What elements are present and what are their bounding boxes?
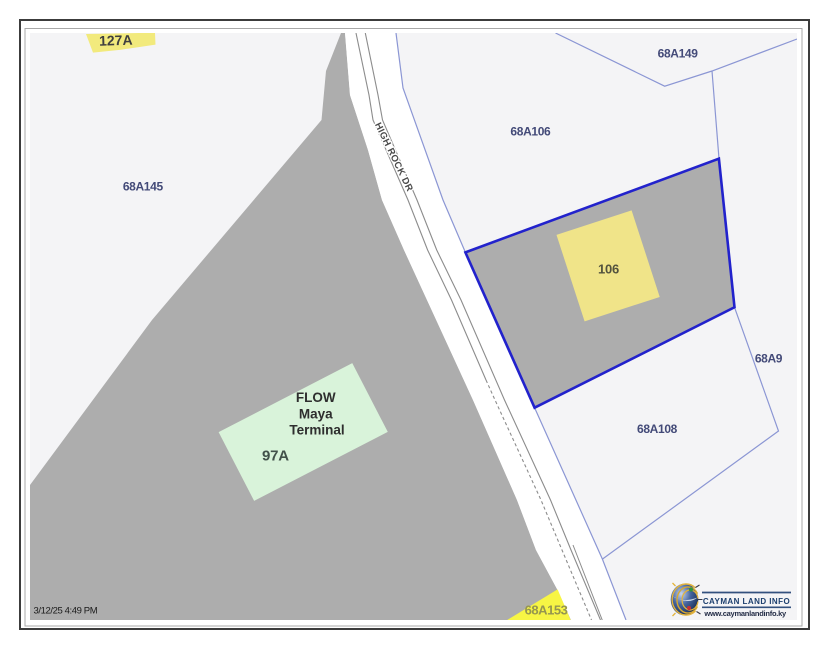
svg-text:3/12/25 4:49 PM: 3/12/25 4:49 PM	[34, 605, 98, 616]
svg-text:68A145: 68A145	[123, 179, 164, 193]
svg-text:127A: 127A	[99, 32, 133, 49]
svg-text:68A106: 68A106	[510, 125, 551, 139]
svg-text:97A: 97A	[262, 447, 289, 464]
svg-text:CAYMAN LAND INFO: CAYMAN LAND INFO	[703, 597, 790, 606]
svg-text:106: 106	[598, 262, 619, 277]
svg-text:68A9: 68A9	[755, 352, 783, 366]
svg-text:68A108: 68A108	[637, 422, 678, 436]
svg-text:68A153: 68A153	[525, 603, 568, 618]
svg-text:Maya: Maya	[299, 407, 333, 422]
svg-text:www.caymanlandinfo.ky: www.caymanlandinfo.ky	[703, 609, 787, 618]
svg-text:FLOW: FLOW	[296, 390, 336, 405]
svg-text:68A149: 68A149	[658, 47, 699, 61]
svg-text:Terminal: Terminal	[289, 423, 344, 438]
